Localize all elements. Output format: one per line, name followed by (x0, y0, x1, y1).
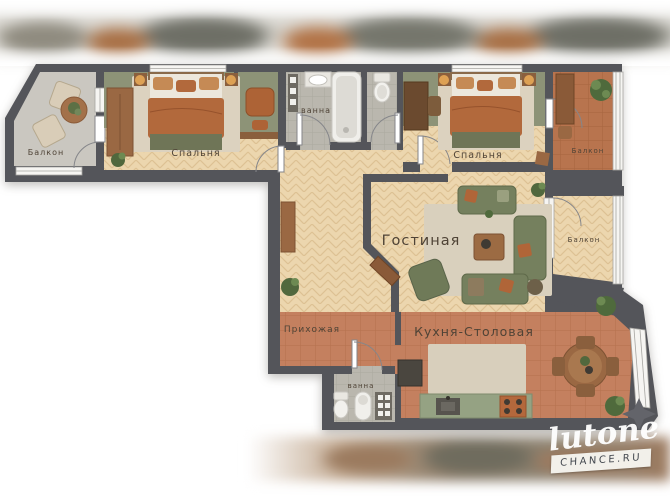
bedroom-right-door-gap (420, 162, 452, 172)
bathroom-top-label: ванна (301, 106, 331, 115)
toilet (334, 400, 348, 418)
wc-fixtures (374, 73, 390, 102)
stool (535, 151, 550, 166)
desk (404, 82, 428, 130)
fridge (398, 360, 422, 386)
bed-duvet (450, 96, 522, 136)
stove (500, 396, 526, 417)
bath-door-gap (300, 142, 330, 150)
balcony-top-right-label: Балкон (572, 147, 605, 155)
wc-door-gap (371, 142, 397, 150)
bedroom-left-label: Спальня (171, 148, 220, 159)
balcony-right-label: Балкон (568, 236, 601, 244)
balcony-left-label: Балкон (28, 148, 64, 157)
pouf (527, 279, 543, 295)
kitchen-dining-label: Кухня-Столовая (414, 324, 534, 339)
hallway-floor (280, 312, 395, 366)
hallway-label: Прихожая (284, 325, 340, 335)
living-room-label: Гостиная (382, 233, 461, 249)
console-table (281, 202, 295, 252)
bedroom-right-label: Спальня (453, 150, 502, 161)
bed-duvet (148, 98, 224, 138)
bathroom-bottom-label: ванна (348, 382, 375, 390)
floor-plan-page: Балкон Спальня ванна Спальня Балкон Гост… (0, 0, 670, 503)
armchair (246, 88, 274, 116)
bathroom-bottom-fixtures (334, 392, 392, 420)
